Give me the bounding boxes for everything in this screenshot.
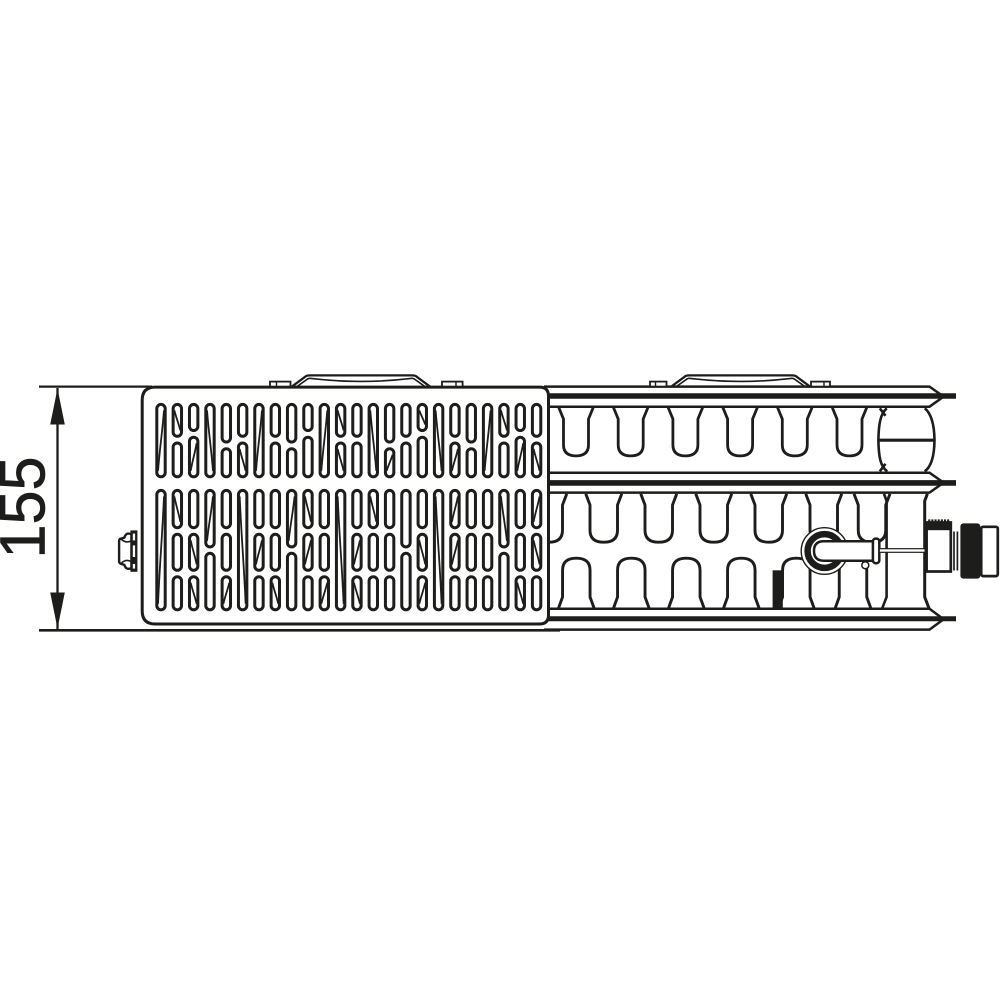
svg-text:155: 155: [0, 457, 59, 559]
